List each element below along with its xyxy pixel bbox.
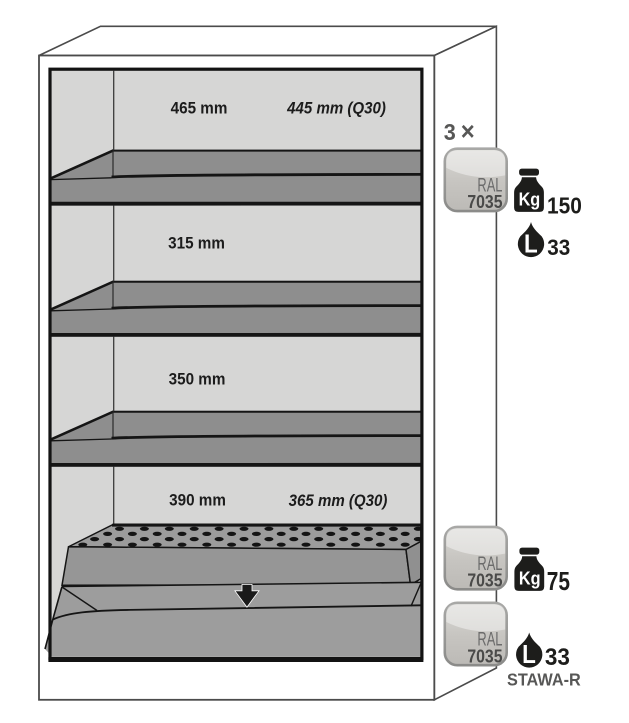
svg-text:390 mm: 390 mm <box>169 492 226 510</box>
svg-text:465 mm: 465 mm <box>171 100 228 118</box>
svg-text:365 mm (Q30): 365 mm (Q30) <box>289 492 388 510</box>
svg-text:150: 150 <box>547 192 582 218</box>
svg-text:7035: 7035 <box>467 191 503 212</box>
svg-text:7035: 7035 <box>467 569 503 590</box>
svg-text:33: 33 <box>545 643 570 670</box>
svg-text:445 mm (Q30): 445 mm (Q30) <box>286 100 386 118</box>
svg-text:315 mm: 315 mm <box>168 235 225 253</box>
svg-text:7035: 7035 <box>467 645 503 666</box>
svg-text:75: 75 <box>547 567 570 595</box>
svg-text:33: 33 <box>547 234 570 260</box>
svg-text:STAWA-R: STAWA-R <box>507 670 581 690</box>
svg-text:350 mm: 350 mm <box>169 371 226 389</box>
